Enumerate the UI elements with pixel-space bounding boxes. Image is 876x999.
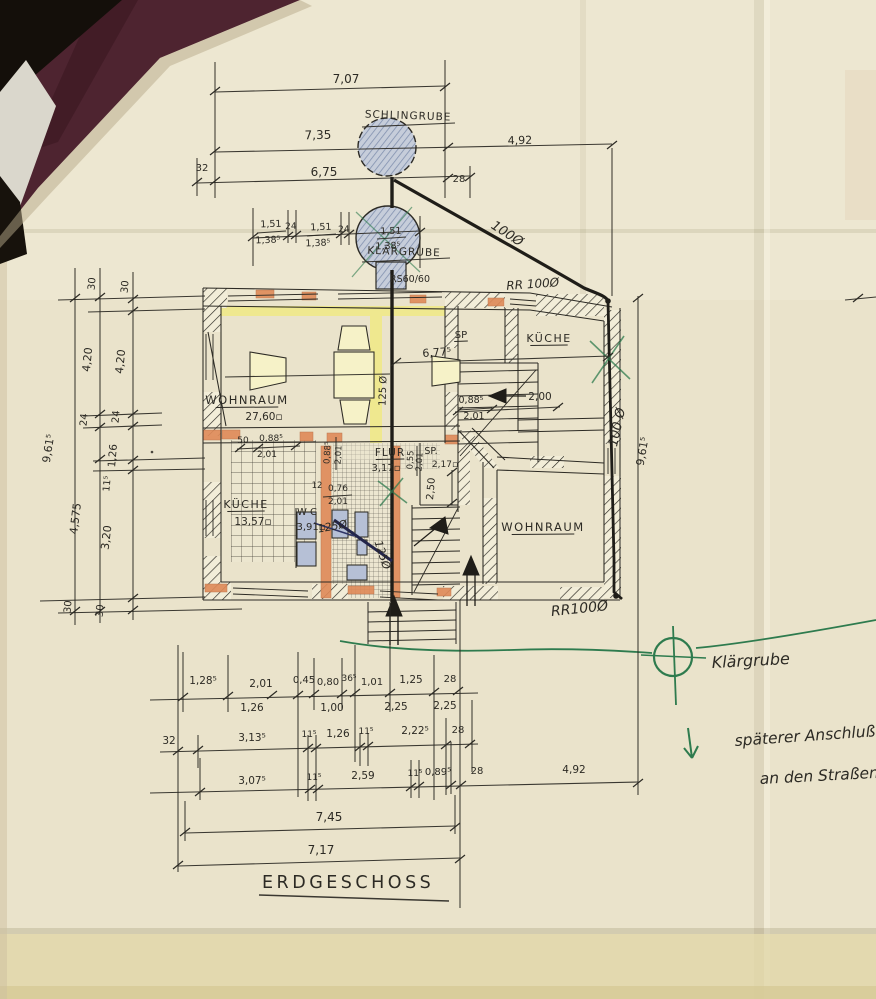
dim-chain-1-51-b: 1,51 [310,222,332,234]
dim-top-7-35: 7,35 [304,128,331,142]
dim-row1b-1-00: 1,00 [320,702,343,714]
dim-top-32: 32 [196,163,209,174]
paper-background [0,0,876,999]
dim-row1-36: 36⁵ [341,674,356,684]
dim-row1b-1-26: 1,26 [240,702,264,714]
dim-chain-1-51-c: 1,51 [380,226,402,238]
photographed-floorplan: 7,07SCHLINGRUBE7,354,92326,75281,511,38⁵… [0,0,876,999]
dim-row1-1-01: 1,01 [361,677,383,688]
dim-left-4-20-b: 4,20 [113,349,128,375]
dim-row2-1-26: 1,26 [326,728,350,740]
dim-left-24-a: 24 [78,413,90,427]
fold-crease-horizontal [0,229,876,233]
room-sp-mid-area: 2,17▫ [432,460,458,470]
dim-plan-12: 12 [312,481,323,491]
dim-row1-1-25: 1,25 [399,674,422,686]
room-flur-name: FLUR [375,447,405,459]
dim-row1-0-80: 0,80 [317,677,339,688]
dim-row3-11-a: 11⁵ [306,773,321,783]
dim-plan-0-88-b: 0,88⁵ [259,434,283,444]
dim-chain-1-51-a: 1,51 [260,219,282,231]
rs60-label: RS60/60 [390,274,430,285]
dim-plan-2-00: 2,00 [528,391,551,403]
floor-title: ERDGESCHOSS [262,873,434,893]
room-wohnraum-right-name: WOHNRAUM [501,520,584,534]
dim-row4-7-45: 7,45 [316,810,343,824]
dim-left-1-26: 1,26 [106,443,120,468]
room-kueche-left-area: 13,57▫ [234,516,271,528]
dim-plan-0-88-a: 0,88⁵ [459,395,484,406]
dim-top-4-92: 4,92 [508,134,533,147]
dim-row1-0-45: 0,45 [293,675,315,686]
dim-row3-11-b: 11⁵ [407,769,422,779]
fold-crease-vertical-a [580,0,586,310]
room-sp-mid-name: SP. [424,446,437,457]
dim-row1b-2-25-a: 2,25 [384,701,407,713]
dim-top-7-07: 7,07 [333,72,360,86]
dim-plan-50: 50 [237,436,249,446]
dim-top-28: 28 [453,174,466,185]
dim-plan-2-01-e: 2,01 [328,497,348,507]
dim-row2-28: 28 [452,725,465,736]
room-sp-top-name: SP [455,330,467,341]
dim-chain-1-38-b: 1,38⁵ [305,238,331,250]
dim-chain-24-a: 24 [285,222,297,232]
dim-plan-2-01-c: 2,01 [334,445,345,464]
dim-plan-0-76: 0,76 [328,484,348,494]
dim-row3-28: 28 [471,766,484,777]
dim-row2-3-13: 3,13⁵ [238,732,266,744]
dim-plan-6-77: 6,77⁵ [422,345,452,360]
dim-left-4-20-a: 4,20 [80,347,95,373]
room-wohnraum-left-name: WOHNRAUM [205,393,288,407]
dim-row1-1-28: 1,28⁵ [189,675,217,687]
dim-left-30-d: 30 [94,604,106,618]
room-wc-name: W C [297,507,317,518]
dim-row2-11-b: 11⁵ [358,727,373,737]
room-kueche-right-name: KÜCHE [526,332,571,345]
dim-row1b-2-25-b: 2,25 [433,700,456,712]
dim-plan-0-88-c: 0,88⁵ [322,441,333,464]
dim-row5-7-17: 7,17 [308,843,335,857]
dim-left-30-b: 30 [119,280,131,294]
fold-crease-bottom [0,928,876,934]
dim-left-30-c: 30 [62,600,74,614]
dim-chain-1-38-a: 1,38⁵ [255,235,281,247]
klaergrube-label: KLÄRGRUBE [367,244,441,260]
dim-row1-2-01: 2,01 [249,678,272,690]
fold-crease-vertical-b [754,0,764,999]
dim-top-6-75: 6,75 [311,165,338,179]
pipe-125-pencil: 125 Ø [376,375,389,406]
dim-left-24-b: 24 [110,410,122,424]
dim-row3-4-92: 4,92 [562,764,585,776]
floorplan-drawing: 7,07SCHLINGRUBE7,354,92326,75281,511,38⁵… [0,0,876,999]
dim-plan-2-01-b: 2,01 [257,450,277,460]
dim-left-11-5: 11⁵ [101,475,113,492]
dim-plan-2-01-a: 2,01 [463,411,484,422]
dim-left-30-a: 30 [86,277,98,291]
room-kueche-left-name: KÜCHE [223,498,268,511]
dim-row3-2-59: 2,59 [351,770,374,782]
dim-row2-32: 32 [162,735,175,747]
dim-row1-28: 28 [444,674,457,685]
room-flur-area: 3,17▫ [371,463,400,474]
room-wohnraum-left-area: 27,60▫ [245,411,282,423]
dim-row3-0-89: 0,89⁵ [425,767,451,778]
dim-row2-2-22: 2,22⁵ [401,725,429,737]
dim-row2-11-a: 11⁵ [301,730,316,740]
dim-plan-2-50: 2,50 [425,477,438,500]
dim-row3-3-07: 3,07⁵ [238,775,266,787]
dim-chain-24-b: 24 [338,225,350,235]
